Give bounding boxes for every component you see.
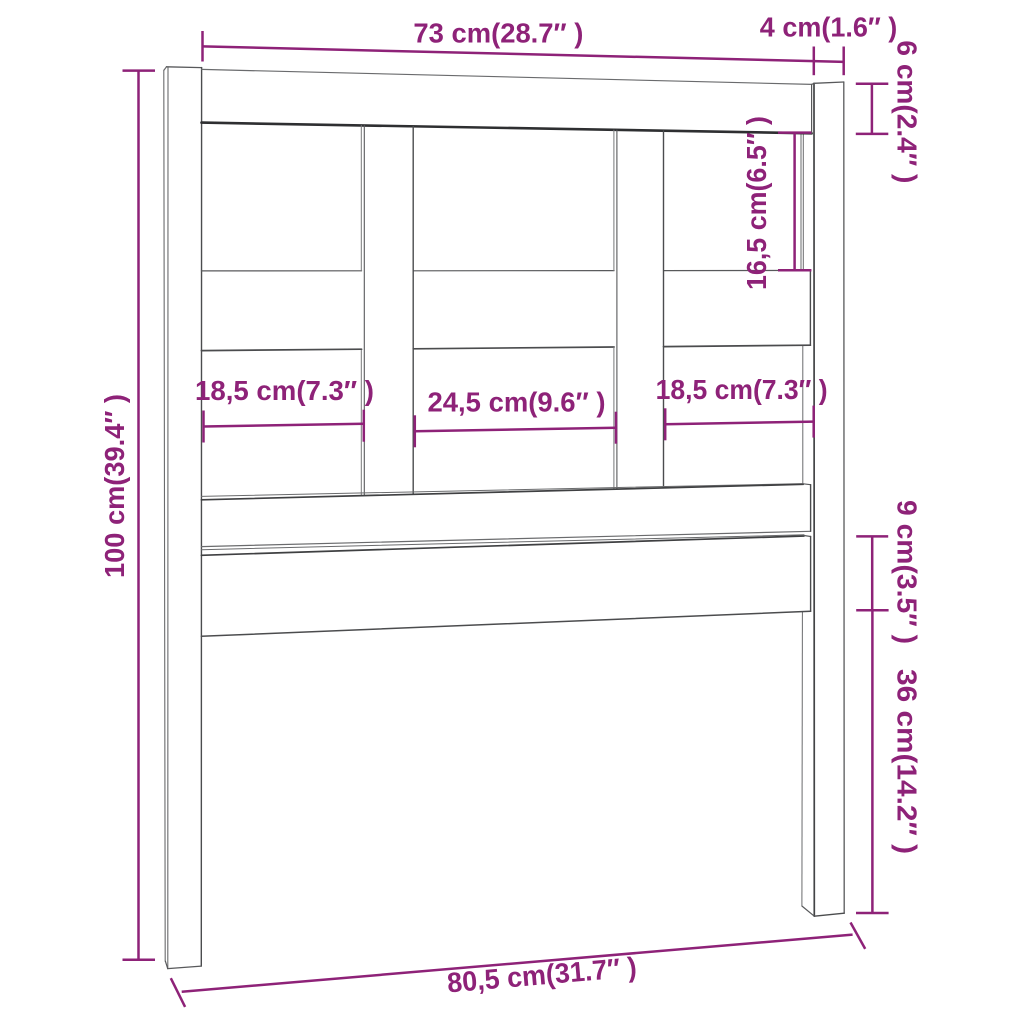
svg-text:100 cm(39.4″ ): 100 cm(39.4″ ): [99, 394, 130, 578]
svg-text:16,5 cm(6.5″ ): 16,5 cm(6.5″ ): [741, 116, 772, 290]
svg-text:18,5 cm(7.3″ ): 18,5 cm(7.3″ ): [656, 374, 828, 405]
svg-text:18,5 cm(7.3″ ): 18,5 cm(7.3″ ): [195, 375, 374, 406]
svg-text:6 cm(2.4″ ): 6 cm(2.4″ ): [892, 40, 923, 183]
svg-text:36 cm(14.2″ ): 36 cm(14.2″ ): [892, 669, 923, 854]
svg-text:4 cm(1.6″ ): 4 cm(1.6″ ): [760, 12, 898, 43]
svg-text:9 cm(3.5″ ): 9 cm(3.5″ ): [892, 500, 923, 644]
svg-text:24,5 cm(9.6″ ): 24,5 cm(9.6″ ): [428, 387, 606, 418]
svg-text:73 cm(28.7″ ): 73 cm(28.7″ ): [413, 18, 583, 49]
